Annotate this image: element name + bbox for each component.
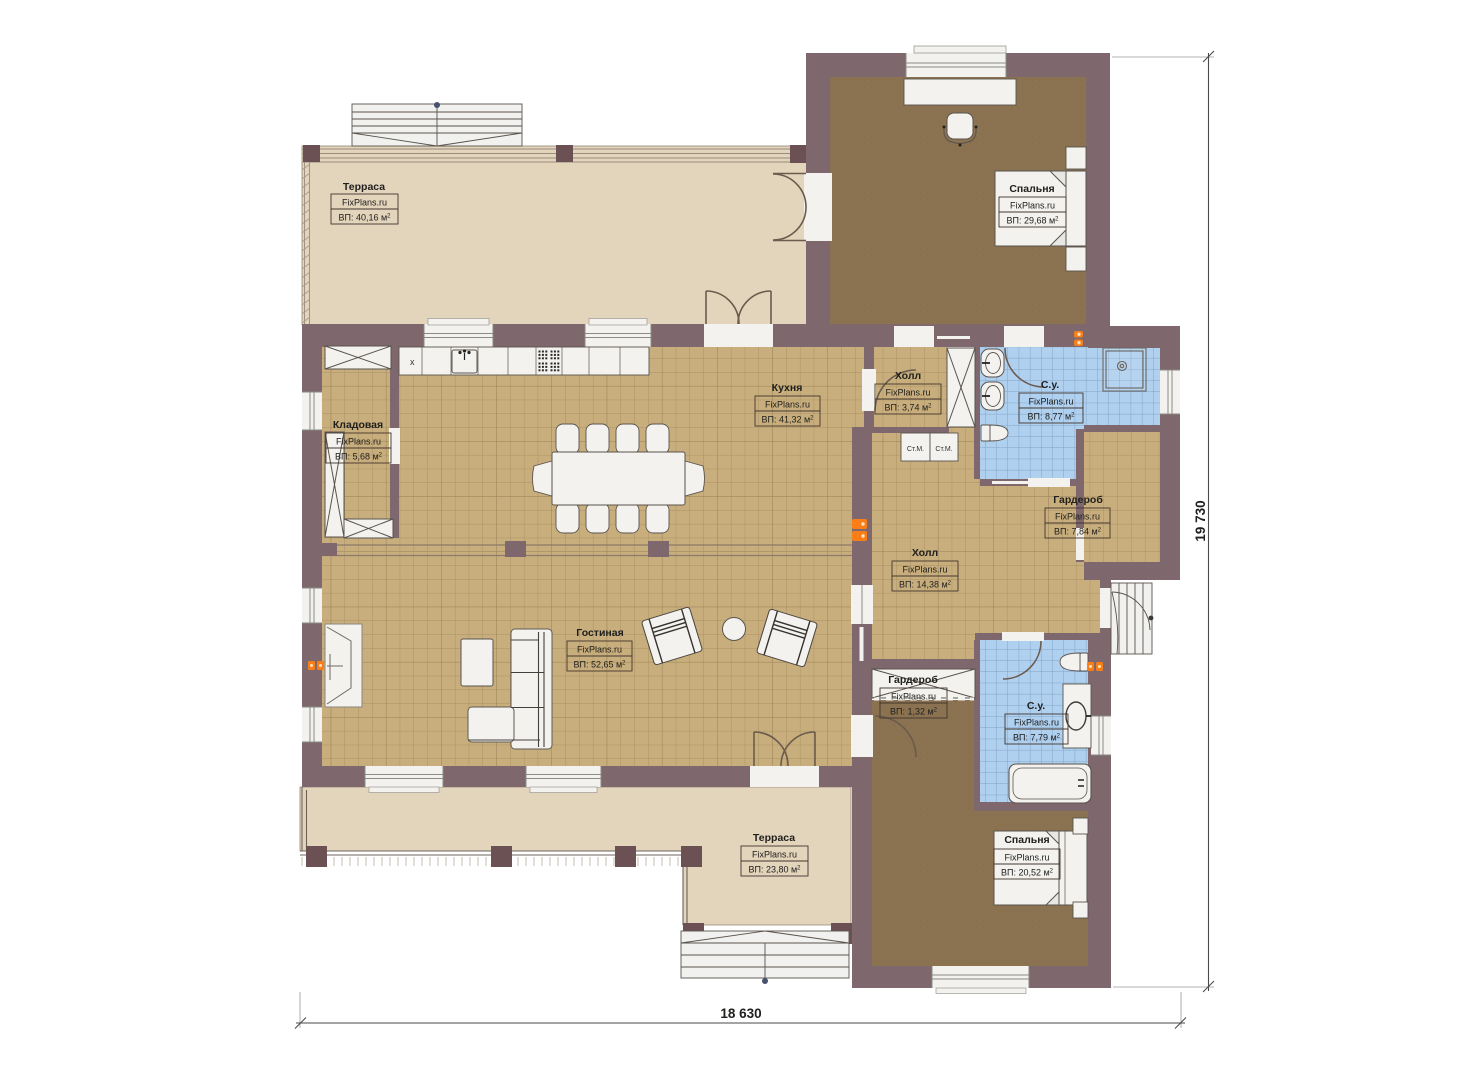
svg-text:FixPlans.ru: FixPlans.ru: [1028, 397, 1073, 407]
svg-text:ВП: 5,68 м2: ВП: 5,68 м2: [335, 452, 383, 462]
svg-text:ВП: 41,32 м2: ВП: 41,32 м2: [761, 415, 814, 425]
svg-text:x: x: [410, 357, 415, 367]
svg-text:FixPlans.ru: FixPlans.ru: [752, 850, 797, 860]
svg-text:Гардероб: Гардероб: [1053, 494, 1103, 506]
svg-text:FixPlans.ru: FixPlans.ru: [336, 437, 381, 447]
svg-text:18 630: 18 630: [720, 1006, 761, 1021]
svg-text:ВП: 23,80 м2: ВП: 23,80 м2: [748, 865, 801, 875]
svg-text:ВП: 3,74 м2: ВП: 3,74 м2: [884, 403, 932, 413]
svg-text:Спальня: Спальня: [1009, 183, 1054, 195]
svg-text:FixPlans.ru: FixPlans.ru: [765, 400, 810, 410]
svg-text:С.у.: С.у.: [1041, 379, 1059, 391]
svg-text:ВП: 29,68 м2: ВП: 29,68 м2: [1006, 216, 1059, 226]
svg-text:Терраса: Терраса: [753, 832, 795, 844]
svg-text:ВП: 14,38 м2: ВП: 14,38 м2: [899, 580, 952, 590]
svg-text:Кладовая: Кладовая: [333, 419, 383, 431]
svg-text:FixPlans.ru: FixPlans.ru: [1004, 853, 1049, 863]
svg-text:Спальня: Спальня: [1004, 834, 1049, 846]
svg-text:Гардероб: Гардероб: [888, 674, 938, 686]
svg-text:FixPlans.ru: FixPlans.ru: [1010, 201, 1055, 211]
svg-text:Ст.М.: Ст.М.: [935, 446, 952, 453]
svg-text:FixPlans.ru: FixPlans.ru: [1014, 718, 1059, 728]
svg-text:Холл: Холл: [895, 370, 921, 382]
svg-text:Ст.М.: Ст.М.: [907, 446, 924, 453]
svg-text:ВП: 7,84 м2: ВП: 7,84 м2: [1054, 527, 1102, 537]
svg-text:FixPlans.ru: FixPlans.ru: [885, 388, 930, 398]
svg-text:ВП: 7,79 м2: ВП: 7,79 м2: [1013, 733, 1061, 743]
svg-text:ВП: 40,16 м2: ВП: 40,16 м2: [338, 213, 391, 223]
svg-text:FixPlans.ru: FixPlans.ru: [1055, 512, 1100, 522]
svg-text:Холл: Холл: [912, 547, 938, 559]
svg-text:19 730: 19 730: [1193, 500, 1208, 541]
svg-text:FixPlans.ru: FixPlans.ru: [577, 645, 622, 655]
svg-text:ВП: 20,52 м2: ВП: 20,52 м2: [1001, 868, 1054, 878]
svg-text:FixPlans.ru: FixPlans.ru: [902, 565, 947, 575]
svg-text:ВП: 52,65 м2: ВП: 52,65 м2: [573, 660, 626, 670]
svg-text:FixPlans.ru: FixPlans.ru: [891, 692, 936, 702]
svg-text:Терраса: Терраса: [343, 181, 385, 193]
svg-text:ВП: 1,32 м2: ВП: 1,32 м2: [890, 707, 938, 717]
svg-text:Гостиная: Гостиная: [576, 627, 623, 639]
svg-text:С.у.: С.у.: [1027, 700, 1045, 712]
svg-text:Кухня: Кухня: [772, 382, 803, 394]
svg-text:ВП: 8,77 м2: ВП: 8,77 м2: [1027, 412, 1075, 422]
svg-text:FixPlans.ru: FixPlans.ru: [342, 198, 387, 208]
